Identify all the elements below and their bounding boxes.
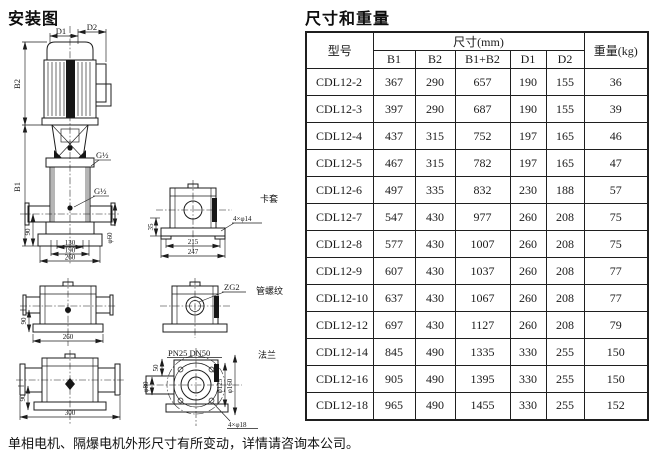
dim-label-b2: B2 (12, 79, 22, 89)
model-cell: CDL12-7 (306, 204, 373, 231)
table-row: CDL12-8577430100726020875 (306, 231, 648, 258)
header-dims-group: 尺寸(mm) (373, 32, 584, 51)
pipe-thread-label: 管螺纹 (256, 285, 283, 296)
value-cell: 1335 (455, 339, 510, 366)
value-cell: 150 (584, 366, 648, 393)
value-cell: 905 (373, 366, 415, 393)
value-cell: 397 (373, 96, 415, 123)
value-cell: 367 (373, 69, 415, 96)
value-cell: 497 (373, 177, 415, 204)
value-cell: 150 (584, 339, 648, 366)
model-cell: CDL12-18 (306, 393, 373, 420)
value-cell: 165 (546, 123, 584, 150)
header-weight: 重量(kg) (584, 32, 648, 69)
dim-label-b1: B1 (12, 182, 22, 192)
flange-rating-label: PN25 DN50 (168, 348, 210, 358)
value-cell: 430 (415, 258, 455, 285)
value-cell: 260 (510, 258, 546, 285)
value-cell: 697 (373, 312, 415, 339)
model-cell: CDL12-9 (306, 258, 373, 285)
spec-table-body: CDL12-236729065719015536CDL12-3397290687… (306, 69, 648, 420)
value-cell: 260 (510, 231, 546, 258)
table-row: CDL12-649733583223018857 (306, 177, 648, 204)
value-cell: 437 (373, 123, 415, 150)
value-cell: 260 (510, 204, 546, 231)
value-cell: 335 (415, 177, 455, 204)
mid-dims: 90 260 (20, 310, 103, 343)
model-cell: CDL12-4 (306, 123, 373, 150)
value-cell: 490 (415, 339, 455, 366)
footer-note: 单相电机、隔爆电机外形尺寸有所变动，详情请咨询本公司。 (8, 433, 359, 452)
dim-label-phi160: φ160 (226, 378, 234, 393)
dim-label-247: 247 (188, 248, 199, 256)
value-cell: 155 (546, 96, 584, 123)
value-cell: 430 (415, 231, 455, 258)
value-cell: 1127 (455, 312, 510, 339)
dim-label-mid-260: 260 (63, 333, 74, 341)
table-row: CDL12-443731575219716546 (306, 123, 648, 150)
value-cell: 1007 (455, 231, 510, 258)
table-row: CDL12-546731578219716547 (306, 150, 648, 177)
installation-diagram: D1 D2 B2 B1 G½ G½ (0, 0, 300, 430)
flange-figure: PN25 DN50 50 φ80 φ125 φ160 4×φ18 法兰 (142, 348, 276, 429)
value-cell: 430 (415, 204, 455, 231)
value-cell: 1037 (455, 258, 510, 285)
value-cell: 687 (455, 96, 510, 123)
dim-label-mid-90: 90 (20, 317, 28, 325)
value-cell: 255 (546, 339, 584, 366)
value-cell: 197 (510, 150, 546, 177)
holes-label-4xphi18: 4×φ18 (228, 421, 247, 429)
bottom-dims: 90 300 (18, 386, 120, 420)
value-cell: 260 (510, 285, 546, 312)
header-model: 型号 (306, 32, 373, 69)
value-cell: 752 (455, 123, 510, 150)
dimensions-weight-title: 尺寸和重量 (305, 5, 390, 29)
value-cell: 637 (373, 285, 415, 312)
value-cell: 39 (584, 96, 648, 123)
value-cell: 190 (510, 96, 546, 123)
table-row: CDL12-754743097726020875 (306, 204, 648, 231)
value-cell: 230 (510, 177, 546, 204)
main-pump-figure: D1 D2 B2 B1 G½ G½ (12, 22, 120, 264)
value-cell: 197 (510, 123, 546, 150)
motor-shaft-stripe (66, 60, 75, 118)
table-row: CDL12-10637430106726020877 (306, 285, 648, 312)
port-callouts: G½ G½ (74, 150, 111, 207)
header-col-b2: B2 (415, 51, 455, 69)
value-cell: 330 (510, 393, 546, 420)
value-cell: 208 (546, 258, 584, 285)
value-cell: 1067 (455, 285, 510, 312)
thread-callout: ZG2 (199, 282, 246, 302)
value-cell: 36 (584, 69, 648, 96)
port-label-bottom: G½ (94, 186, 107, 196)
pipe-thread-figure: ZG2 管螺纹 (160, 278, 283, 338)
value-cell: 79 (584, 312, 648, 339)
dim-label-260: 260 (65, 254, 76, 262)
value-cell: 152 (584, 393, 648, 420)
value-cell: 547 (373, 204, 415, 231)
value-cell: 330 (510, 339, 546, 366)
model-cell: CDL12-2 (306, 69, 373, 96)
spec-table: 型号 尺寸(mm) 重量(kg) B1 B2 B1+B2 D1 D2 CDL12… (305, 31, 649, 421)
value-cell: 77 (584, 258, 648, 285)
value-cell: 188 (546, 177, 584, 204)
value-cell: 1455 (455, 393, 510, 420)
table-row: CDL12-148454901335330255150 (306, 339, 648, 366)
value-cell: 657 (455, 69, 510, 96)
value-cell: 490 (415, 366, 455, 393)
terminal-box (96, 64, 106, 102)
value-cell: 782 (455, 150, 510, 177)
value-cell: 77 (584, 285, 648, 312)
dim-label-d2: D2 (87, 22, 97, 32)
table-row: CDL12-12697430112726020879 (306, 312, 648, 339)
bottom-base-figure: 90 300 (16, 350, 124, 424)
table-row: CDL12-169054901395330255150 (306, 366, 648, 393)
value-cell: 255 (546, 393, 584, 420)
value-cell: 165 (546, 150, 584, 177)
model-cell: CDL12-5 (306, 150, 373, 177)
catalog-page: 安装图 尺寸和重量 (0, 0, 650, 455)
value-cell: 260 (510, 312, 546, 339)
value-cell: 290 (415, 69, 455, 96)
thread-label-zg2: ZG2 (224, 282, 240, 292)
value-cell: 430 (415, 312, 455, 339)
value-cell: 607 (373, 258, 415, 285)
value-cell: 47 (584, 150, 648, 177)
dim-base-widths: 130 190 260 (40, 239, 100, 263)
model-cell: CDL12-14 (306, 339, 373, 366)
clamp-label: 卡套 (260, 193, 278, 204)
header-col-b1: B1 (373, 51, 415, 69)
table-row: CDL12-9607430103726020877 (306, 258, 648, 285)
table-row: CDL12-339729068719015539 (306, 96, 648, 123)
mid-base-figure: 90 260 (20, 278, 116, 346)
value-cell: 315 (415, 150, 455, 177)
header-col-d1: D1 (510, 51, 546, 69)
dim-label-90: 90 (24, 228, 32, 236)
table-row: CDL12-189654901455330255152 (306, 393, 648, 420)
header-group-row: 型号 尺寸(mm) 重量(kg) (306, 32, 648, 51)
dim-label-phi80: φ80 (142, 381, 150, 393)
model-cell: CDL12-12 (306, 312, 373, 339)
model-cell: CDL12-10 (306, 285, 373, 312)
value-cell: 1395 (455, 366, 510, 393)
dim-label-phi125: φ125 (216, 378, 224, 393)
terminal-box-cover (96, 84, 111, 106)
value-cell: 330 (510, 366, 546, 393)
value-cell: 208 (546, 285, 584, 312)
table-row: CDL12-236729065719015536 (306, 69, 648, 96)
value-cell: 845 (373, 339, 415, 366)
value-cell: 208 (546, 231, 584, 258)
value-cell: 977 (455, 204, 510, 231)
value-cell: 46 (584, 123, 648, 150)
dim-label-50: 50 (152, 364, 160, 372)
dim-label-300: 300 (65, 409, 76, 417)
flange-label: 法兰 (258, 349, 276, 360)
dim-label-215: 215 (188, 238, 199, 246)
value-cell: 208 (546, 312, 584, 339)
dim-label-35: 35 (147, 223, 155, 231)
dim-label-phi60: φ60 (106, 232, 114, 244)
value-cell: 832 (455, 177, 510, 204)
value-cell: 315 (415, 123, 455, 150)
model-cell: CDL12-6 (306, 177, 373, 204)
header-col-b1b2: B1+B2 (455, 51, 510, 69)
model-cell: CDL12-8 (306, 231, 373, 258)
value-cell: 75 (584, 231, 648, 258)
value-cell: 155 (546, 69, 584, 96)
value-cell: 290 (415, 96, 455, 123)
model-cell: CDL12-3 (306, 96, 373, 123)
port-label-top: G½ (96, 150, 109, 160)
value-cell: 190 (510, 69, 546, 96)
value-cell: 208 (546, 204, 584, 231)
value-cell: 467 (373, 150, 415, 177)
value-cell: 57 (584, 177, 648, 204)
dim-label-d1: D1 (56, 26, 66, 36)
holes-label-4xphi14: 4×φ14 (233, 215, 252, 223)
model-cell: CDL12-16 (306, 366, 373, 393)
value-cell: 965 (373, 393, 415, 420)
value-cell: 255 (546, 366, 584, 393)
clamp-connection-figure: 35 215 247 4×φ14 卡套 (147, 180, 278, 258)
value-cell: 490 (415, 393, 455, 420)
value-cell: 577 (373, 231, 415, 258)
header-col-d2: D2 (546, 51, 584, 69)
value-cell: 75 (584, 204, 648, 231)
value-cell: 430 (415, 285, 455, 312)
